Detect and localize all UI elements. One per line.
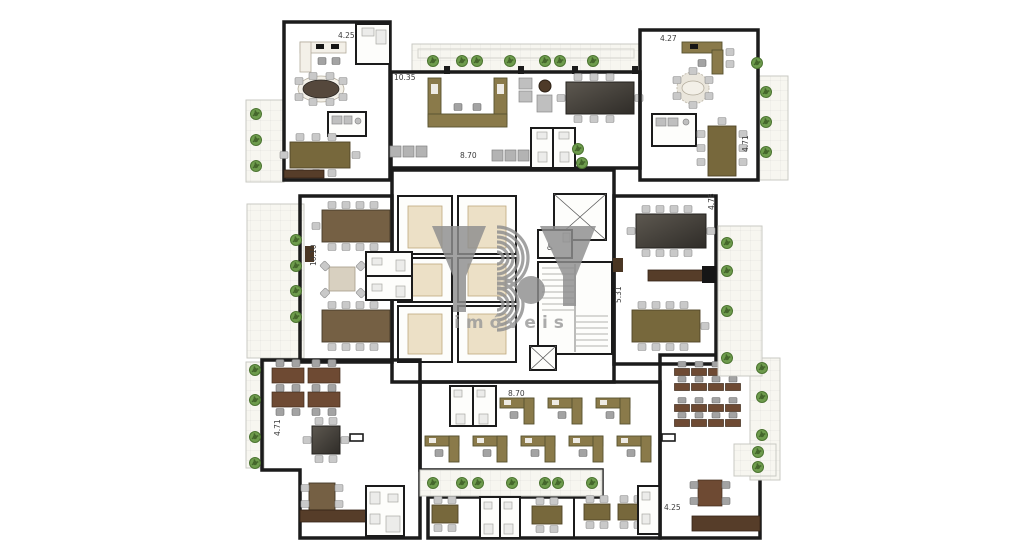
waiting-chair — [416, 146, 427, 157]
shaft — [530, 346, 556, 370]
waiting-chair — [492, 150, 503, 161]
floor-plan-page: ♿ — [0, 0, 1024, 553]
plant-icon — [752, 58, 763, 69]
cabinet — [702, 266, 716, 283]
plant-icon — [722, 306, 733, 317]
plant-icon — [588, 56, 599, 67]
plant-icon — [251, 161, 262, 172]
round-table — [682, 81, 704, 95]
dimension-label: 4.71 — [741, 135, 750, 152]
dimension-label: 10.35 — [394, 73, 416, 82]
plant-icon — [753, 447, 764, 458]
waiting-chair — [390, 146, 401, 157]
plant-icon — [540, 478, 551, 489]
plant-icon — [457, 478, 468, 489]
conference-table — [566, 82, 634, 114]
elevator-car — [408, 264, 442, 296]
workstation — [617, 436, 651, 462]
dimension-label: 8.70 — [460, 151, 477, 160]
whiteboard — [662, 434, 675, 441]
plant-icon — [250, 458, 261, 469]
dimension-label: 10.10 — [309, 244, 318, 266]
suite-top-left — [280, 22, 390, 180]
plant-icon — [428, 56, 439, 67]
desk-cluster — [272, 360, 340, 416]
suite-top-right — [640, 30, 758, 180]
plant-icon — [291, 235, 302, 246]
suite-bottom-center — [420, 382, 660, 538]
conference-table — [636, 214, 706, 248]
suite-left-middle — [300, 196, 412, 362]
plant-icon — [291, 312, 302, 323]
waiting-chair — [518, 150, 529, 161]
small-table — [532, 506, 562, 524]
plant-icon — [587, 478, 598, 489]
plant-icon — [761, 87, 772, 98]
plant-icon — [722, 238, 733, 249]
workstation — [569, 436, 603, 462]
meeting-table — [329, 267, 355, 291]
small-table — [309, 483, 335, 510]
suite-bottom-left — [262, 360, 420, 539]
small-table — [432, 505, 458, 523]
plant-icon — [457, 56, 468, 67]
small-table — [584, 504, 610, 520]
workstation — [473, 436, 507, 462]
dimension-label: 8.70 — [508, 389, 525, 398]
conference-table — [322, 310, 390, 342]
chair — [318, 58, 326, 65]
monitor-icon — [331, 44, 339, 49]
plant-icon — [753, 462, 764, 473]
monitor-icon — [690, 44, 698, 49]
dimension-label: 4.25 — [664, 503, 681, 512]
plant-icon — [250, 365, 261, 376]
plant-icon — [251, 109, 262, 120]
wc-pair — [450, 386, 496, 426]
conference-table — [632, 310, 700, 342]
plant-icon — [722, 353, 733, 364]
reception-u-desk — [428, 78, 507, 127]
sideboard — [300, 510, 366, 522]
plant-icon — [428, 478, 439, 489]
bathroom — [366, 486, 404, 536]
plant-icon — [472, 56, 483, 67]
dimension-label: 4.27 — [660, 34, 677, 43]
plant-icon — [507, 478, 518, 489]
plant-icon — [505, 56, 516, 67]
dimension-label: 4.71 — [273, 419, 282, 436]
kitchenette — [519, 78, 552, 112]
suite-top-center — [390, 66, 643, 168]
wc-pair — [531, 128, 575, 168]
plant-icon — [757, 392, 768, 403]
plant-icon — [722, 266, 733, 277]
plant-icon — [251, 135, 262, 146]
dining-table — [290, 142, 350, 168]
plant-icon — [291, 261, 302, 272]
waiting-chair — [505, 150, 516, 161]
plant-icon — [553, 478, 564, 489]
wc-pair — [366, 252, 412, 300]
plant-icon — [250, 395, 261, 406]
plant-icon — [757, 430, 768, 441]
plant-icon — [291, 286, 302, 297]
workstation — [521, 436, 555, 462]
waiting-chair — [403, 146, 414, 157]
small-table — [698, 480, 722, 506]
workstation — [425, 436, 459, 462]
workstation — [548, 398, 582, 424]
plant-icon — [761, 147, 772, 158]
plant-icon — [540, 56, 551, 67]
floor-plan: ♿ — [0, 0, 1024, 553]
sideboard — [692, 516, 760, 531]
watermark-tagline: imóveis — [454, 313, 570, 333]
sideboard — [648, 270, 704, 281]
elevator-car — [408, 314, 442, 354]
building-core: ♿ — [392, 170, 614, 382]
monitor-icon — [316, 44, 324, 49]
door — [613, 258, 623, 272]
chair — [332, 58, 340, 65]
plant-icon — [555, 56, 566, 67]
conference-table — [322, 210, 390, 242]
dimension-label: 4.78 — [707, 193, 716, 210]
whiteboard — [350, 434, 363, 441]
plant-icon — [250, 432, 261, 443]
workstation — [596, 398, 630, 424]
terrace — [247, 204, 304, 358]
dimension-label: 4.25 — [338, 31, 355, 40]
workstation — [500, 398, 534, 424]
plant-icon — [757, 363, 768, 374]
plant-icon — [473, 478, 484, 489]
meeting-table — [312, 426, 340, 454]
plant-icon — [577, 158, 588, 169]
dining-table — [708, 126, 736, 176]
plant-icon — [573, 144, 584, 155]
plant-icon — [761, 117, 772, 128]
dimension-label: 5.31 — [614, 286, 623, 303]
suite-right-middle — [613, 196, 716, 364]
sideboard — [284, 170, 324, 178]
